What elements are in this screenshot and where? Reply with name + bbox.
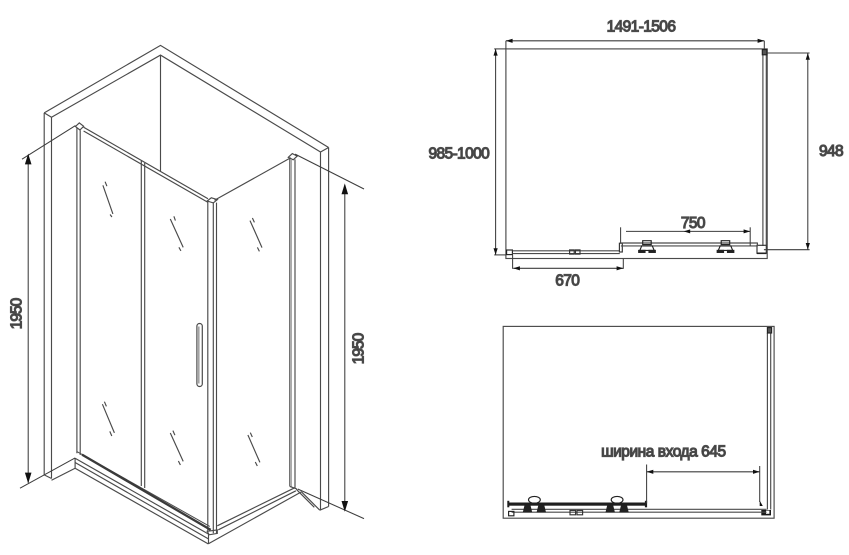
svg-text:1950: 1950 (9, 297, 26, 329)
svg-text:750: 750 (681, 215, 706, 232)
svg-text:948: 948 (819, 143, 843, 160)
svg-text:ширина входа 645: ширина входа 645 (601, 443, 726, 460)
svg-text:1491-1506: 1491-1506 (607, 19, 676, 36)
svg-text:985-1000: 985-1000 (428, 145, 490, 162)
svg-text:1950: 1950 (350, 332, 367, 364)
svg-text:670: 670 (555, 273, 580, 290)
